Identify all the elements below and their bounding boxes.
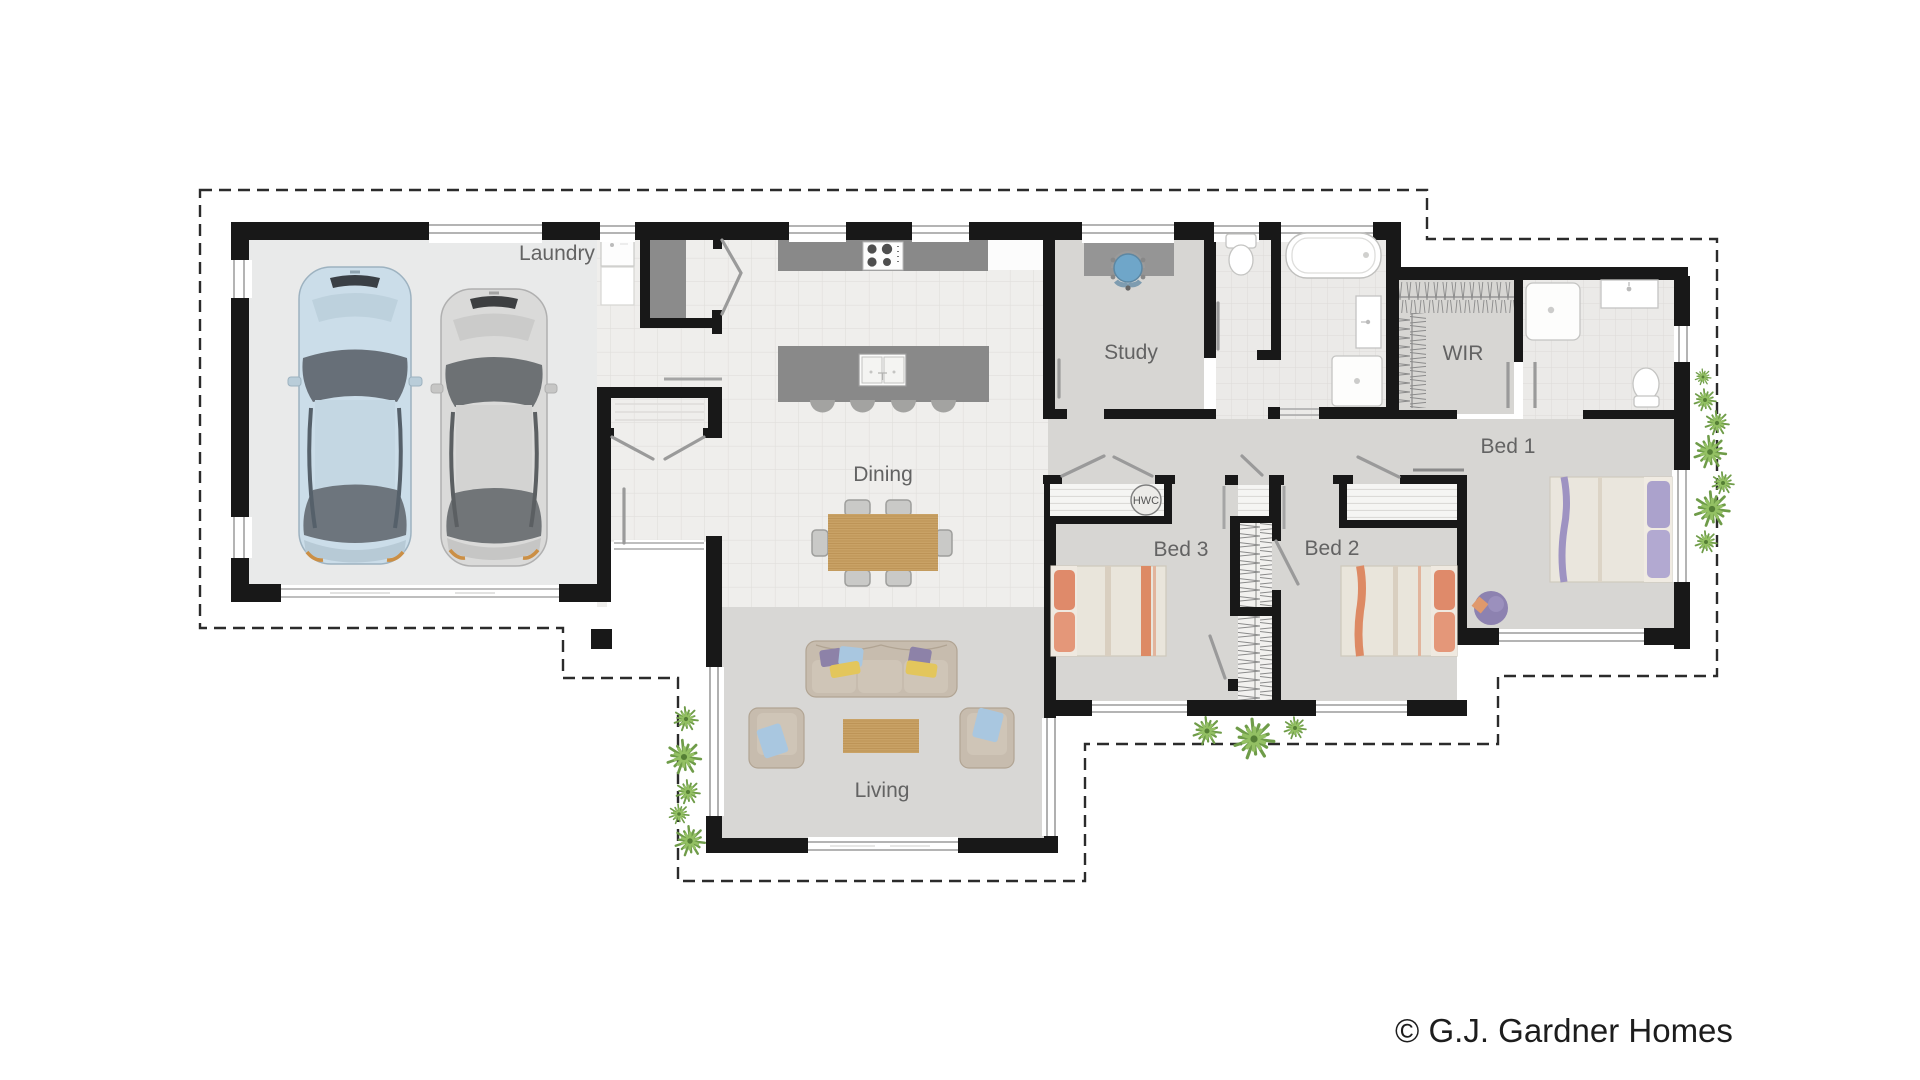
svg-text:Dining: Dining <box>853 463 913 486</box>
svg-text:WIR: WIR <box>1443 342 1484 365</box>
svg-text:Laundry: Laundry <box>519 242 595 265</box>
svg-text:Bed 1: Bed 1 <box>1481 435 1536 458</box>
svg-text:HWC: HWC <box>1133 495 1159 507</box>
svg-text:Living: Living <box>855 779 910 802</box>
svg-text:Bed 2: Bed 2 <box>1305 537 1360 560</box>
svg-text:Bed 3: Bed 3 <box>1154 538 1209 561</box>
svg-text:© G.J. Gardner Homes: © G.J. Gardner Homes <box>1395 1012 1733 1049</box>
svg-text:Study: Study <box>1104 341 1158 364</box>
